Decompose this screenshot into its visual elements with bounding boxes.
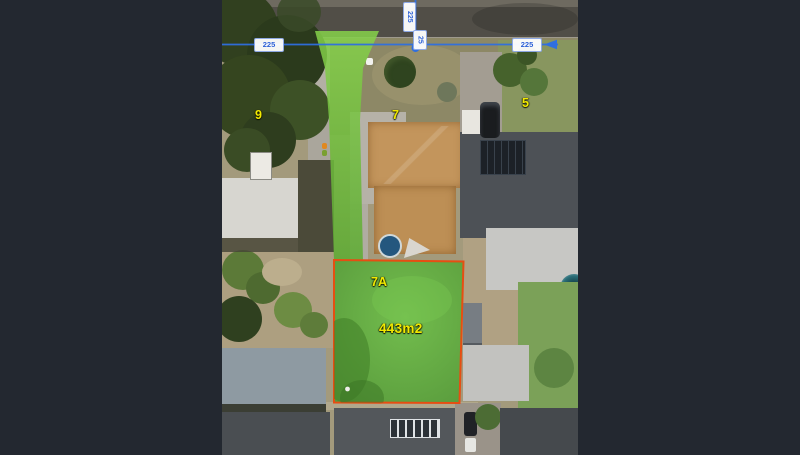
- pool-7: [378, 234, 402, 258]
- bottom-left-roof: [222, 412, 330, 455]
- garage-5-roof: [463, 345, 529, 401]
- backyard-bush: [534, 348, 574, 388]
- lot-label-7a: 7A: [371, 276, 387, 289]
- small-grey-tree: [437, 82, 457, 102]
- house-7-ridge: [372, 126, 460, 184]
- screenshot-canvas: 225 225 225 25 9 7 5 7A 443m2: [0, 0, 800, 455]
- lot-label-9: 9: [255, 109, 262, 122]
- white-boat: [465, 438, 476, 452]
- measure-label-vertical-bottom: 25: [413, 30, 427, 50]
- path-7: [350, 204, 368, 260]
- measure-label-vertical-top: 225: [403, 2, 416, 32]
- lot-label-5: 5: [522, 97, 529, 110]
- palm-tree: [300, 312, 328, 338]
- fence-shadow: [222, 404, 326, 412]
- shed-9: [250, 152, 272, 180]
- carport-5: [462, 110, 481, 134]
- tree-5: [520, 68, 548, 96]
- measure-label-225-right: 225: [512, 38, 542, 52]
- bin-orange: [322, 143, 327, 149]
- bin-green: [322, 150, 327, 156]
- house-9-shadow: [222, 238, 298, 252]
- lot-label-7: 7: [392, 109, 399, 122]
- shed-5: [463, 303, 482, 345]
- bottom-tree: [475, 404, 501, 430]
- solar-panels-bottom: [390, 419, 440, 438]
- house-9b-roof: [222, 348, 326, 406]
- mailbox: [366, 58, 373, 65]
- round-tree: [384, 56, 416, 88]
- black-suv: [480, 102, 500, 138]
- measure-label-225-left: 225: [254, 38, 284, 52]
- road-wet-patch: [472, 3, 578, 35]
- house-9-roof: [222, 178, 298, 238]
- lot-area-label: 443m2: [379, 322, 423, 336]
- aerial-photo: 225 225 225 25 9 7 5 7A 443m2: [222, 0, 578, 455]
- bottom-right-roof: [500, 408, 578, 455]
- sand-streak: [262, 258, 302, 286]
- solar-panels-5: [480, 140, 526, 175]
